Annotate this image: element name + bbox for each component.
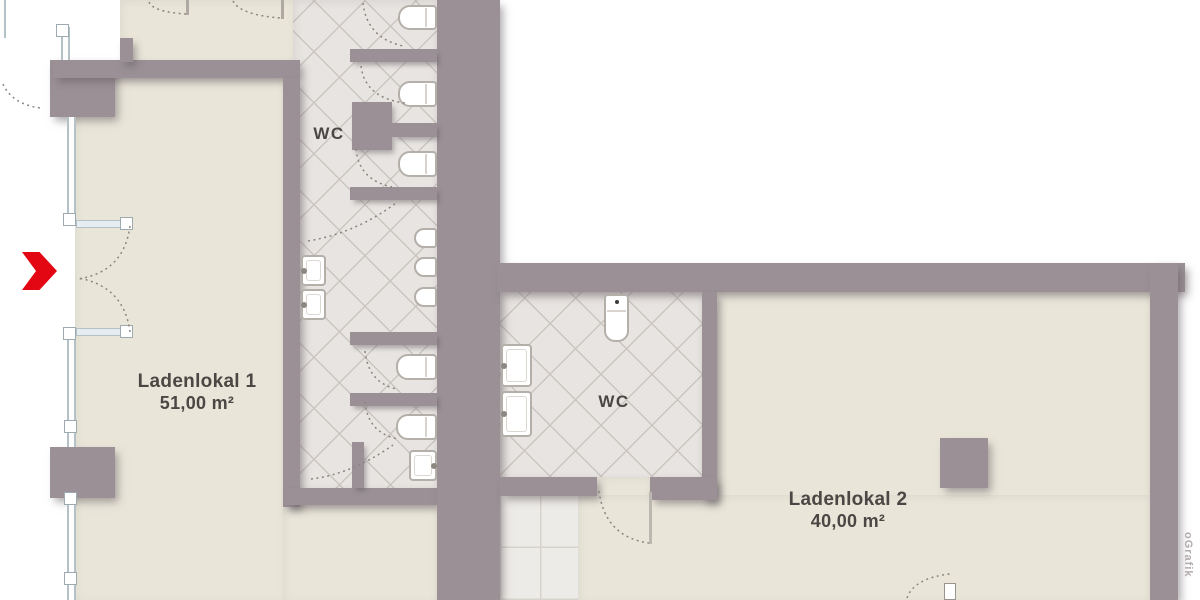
- sink-1: [301, 255, 326, 286]
- label-wc-room: WC: [588, 392, 640, 412]
- toilet-5: [396, 414, 437, 440]
- entrance-arrow-icon: [22, 252, 57, 290]
- door-leaf-upper-room-2: [281, 0, 284, 19]
- wall-l2-right: [1150, 263, 1178, 600]
- urinal-1: [414, 228, 437, 248]
- wall-l1-corridor: [283, 78, 300, 507]
- floor-ladenlokal-1: [75, 78, 283, 600]
- glazing-connector-4: [64, 572, 77, 585]
- label-ladenlokal-2: Ladenlokal 2 40,00 m²: [748, 489, 948, 532]
- door-leaf-top-tip: [120, 217, 133, 230]
- unit-2-area: 40,00 m²: [748, 511, 948, 532]
- door-leaf-bottom-tip: [120, 325, 133, 338]
- partition-shaft-stub: [392, 123, 437, 137]
- sink-2: [301, 289, 326, 320]
- toilet-4: [396, 354, 437, 380]
- toilet-wc-room: [604, 294, 629, 342]
- glazing-edge-fragment: [1, 0, 6, 38]
- door-leaf-l2-bottom: [944, 583, 956, 600]
- label-wc-corridor: WC: [303, 124, 355, 144]
- partition-shaft: [352, 102, 392, 150]
- label-ladenlokal-1: Ladenlokal 1 51,00 m²: [97, 371, 297, 414]
- partition-3: [350, 332, 437, 345]
- wall-wc-room-bottom-left: [500, 477, 597, 496]
- door-leaf-upper-room-1: [186, 0, 189, 15]
- arc-outside-left: [3, 84, 40, 108]
- toilet-1: [398, 5, 437, 30]
- wall-wc-room-bottom-right: [650, 477, 717, 500]
- wall-wc-room-right: [702, 292, 717, 500]
- wall-spine: [437, 0, 500, 600]
- floor-upper-room: [120, 0, 293, 62]
- wall-l2-top: [497, 263, 1185, 292]
- urinal-3: [414, 287, 437, 307]
- partition-4: [350, 393, 437, 406]
- door-hinge-top: [63, 213, 76, 226]
- sink-5: [501, 391, 532, 437]
- unit-2-name: Ladenlokal 2: [748, 489, 948, 511]
- partition-1: [350, 49, 437, 62]
- urinal-2: [414, 257, 437, 277]
- wall-corridor-bottom: [285, 488, 437, 505]
- glazing-seg-1: [67, 117, 76, 215]
- glazing-connector-2: [64, 420, 77, 433]
- door-hinge-bottom: [63, 327, 76, 340]
- wall-stub-top: [120, 38, 133, 62]
- floor-ladenlokal-1-ext: [283, 505, 437, 600]
- wall-l2-pillar: [940, 438, 988, 488]
- glazing-connector: [56, 24, 69, 37]
- sink-3: [409, 450, 437, 481]
- partition-stub-bottom: [352, 442, 364, 488]
- glazing-connector-3: [64, 492, 77, 505]
- toilet-2: [398, 81, 437, 107]
- partition-2: [350, 187, 437, 200]
- door-leaf-wc-room: [649, 492, 652, 544]
- wall-l1-top: [53, 60, 300, 78]
- floor-vestibule: [500, 495, 580, 600]
- sink-4: [501, 344, 532, 387]
- wall-pillar-left-bottom: [50, 447, 115, 498]
- floorplan: Ladenlokal 1 51,00 m² Ladenlokal 2 40,00…: [0, 0, 1200, 600]
- unit-1-area: 51,00 m²: [97, 393, 297, 414]
- toilet-3: [398, 151, 437, 177]
- watermark-text: oGrafik: [1182, 532, 1194, 578]
- unit-1-name: Ladenlokal 1: [97, 371, 297, 393]
